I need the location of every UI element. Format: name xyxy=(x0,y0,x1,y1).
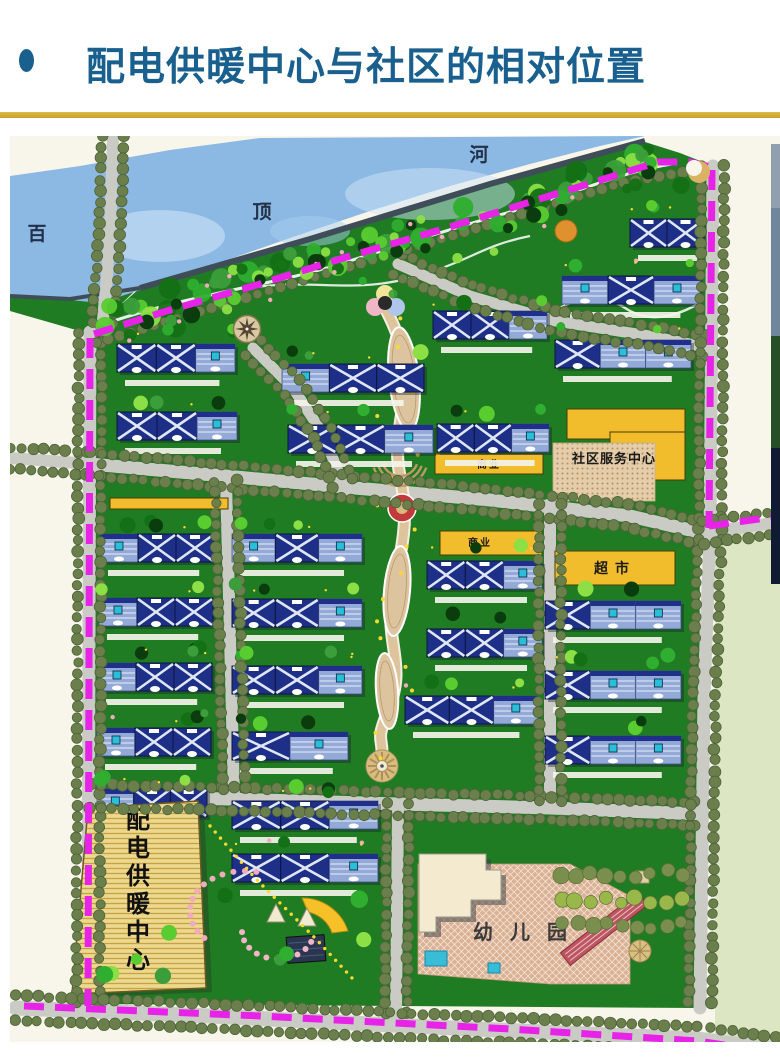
page-title: 配电供暖中心与社区的相对位置 xyxy=(86,36,646,92)
label-heating-center-char: 暖 xyxy=(126,891,151,918)
title-bullet-icon xyxy=(19,49,34,72)
compass-icon xyxy=(234,316,261,343)
site-plan-map: 商业商业超市社区服务中心配电供暖中心幼儿园百顶河 xyxy=(10,136,780,1042)
site-plan-map-container: 商业商业超市社区服务中心配电供暖中心幼儿园百顶河 xyxy=(10,136,780,1042)
orange-canopy xyxy=(555,220,577,242)
label-river_left: 百 xyxy=(27,224,46,245)
presentation-slide: 配电供暖中心与社区的相对位置 商业商业超市社区服务中心配电供暖中心幼儿园百顶河 xyxy=(0,0,780,1062)
garden-circle-feature xyxy=(629,940,651,962)
label-heating-center-char: 供 xyxy=(125,863,150,890)
right-edge-slivers xyxy=(771,144,780,584)
label-supermarket: 超市 xyxy=(593,560,636,577)
label-river_mid: 顶 xyxy=(252,201,271,223)
sunburst-plaza xyxy=(366,750,398,782)
label-community-center: 社区服务中心 xyxy=(571,451,656,466)
title-underline xyxy=(0,112,780,118)
label-heating-center-char: 电 xyxy=(126,835,150,862)
label-river_right: 河 xyxy=(469,144,488,166)
label-heating-center-char: 中 xyxy=(126,919,150,946)
